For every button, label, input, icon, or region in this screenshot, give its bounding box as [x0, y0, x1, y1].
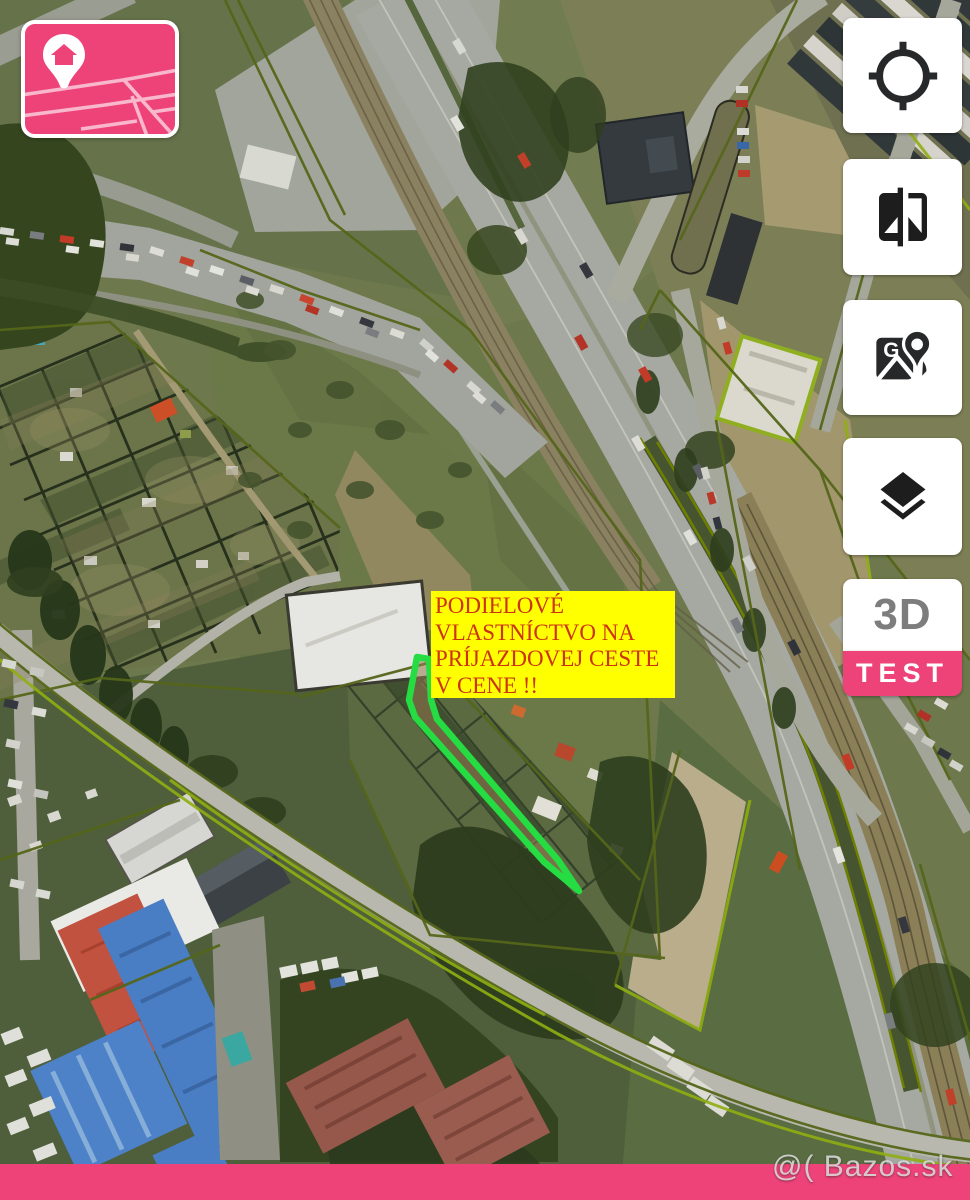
svg-text:G: G — [883, 338, 899, 361]
